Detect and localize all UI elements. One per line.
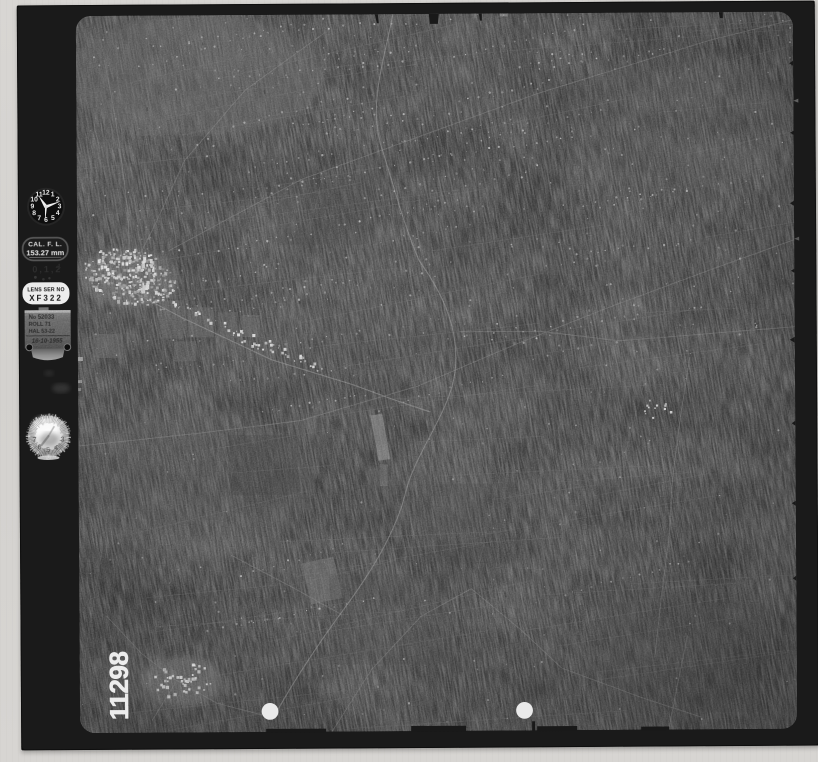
svg-text:11298: 11298: [104, 652, 134, 721]
svg-text:12: 12: [42, 190, 50, 197]
svg-text:8: 8: [32, 210, 36, 217]
svg-text:5: 5: [51, 215, 55, 222]
svg-text:4: 4: [56, 262, 61, 271]
svg-text:9: 9: [30, 203, 34, 210]
svg-text:7: 7: [33, 437, 37, 444]
svg-text:4: 4: [56, 210, 60, 217]
svg-text:1: 1: [51, 191, 55, 198]
svg-text:6: 6: [44, 217, 48, 224]
svg-text:LENS SER NO: LENS SER NO: [27, 287, 64, 293]
svg-text:XF322: XF322: [29, 294, 63, 303]
svg-text:4: 4: [54, 445, 58, 452]
svg-text:5: 5: [46, 447, 50, 454]
svg-text:3: 3: [60, 436, 64, 443]
svg-text:7: 7: [37, 215, 41, 222]
svg-text:153.27 mm: 153.27 mm: [26, 248, 64, 257]
